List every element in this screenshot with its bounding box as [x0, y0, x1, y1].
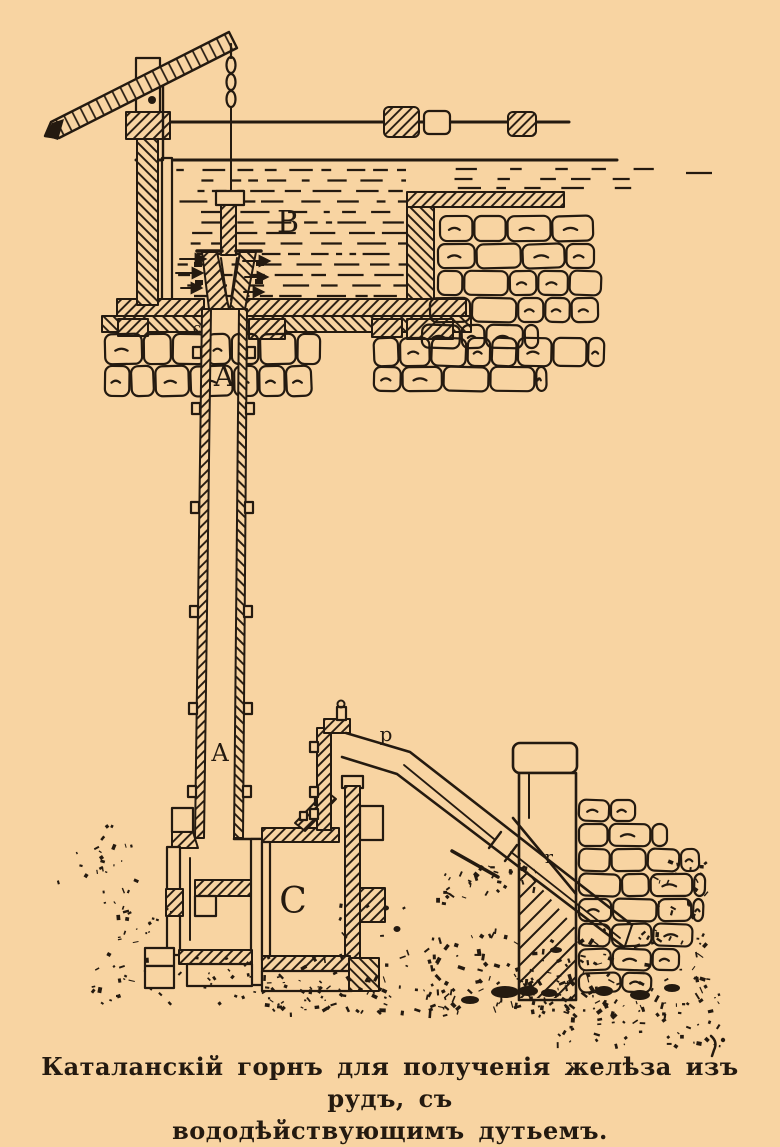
ground-speckle	[456, 955, 459, 957]
ground-speckle	[697, 1024, 699, 1026]
stone	[694, 874, 705, 896]
stone	[443, 366, 488, 391]
ground-speckle	[586, 960, 589, 965]
stone	[647, 848, 679, 871]
ground-speckle	[450, 989, 453, 995]
ground-speckle	[540, 1005, 544, 1010]
ground-speckle	[414, 1008, 421, 1013]
ground-speckle	[504, 935, 508, 940]
ground-speckle	[569, 1040, 572, 1043]
ground-speckle	[467, 989, 473, 995]
stone	[579, 873, 621, 896]
ground-speckle	[385, 963, 388, 966]
stone	[490, 367, 534, 392]
ground-speckle	[178, 971, 182, 975]
ground-speckle	[701, 933, 705, 937]
caption-line-1: Каталанскій горнъ для полученія желѣза и…	[0, 1051, 780, 1115]
ground-speckle	[655, 932, 659, 937]
hearth-label: r	[545, 848, 554, 868]
ground-speckle	[494, 928, 497, 934]
caption: Каталанскій горнъ для полученія желѣза и…	[0, 1051, 780, 1147]
ground-speckle	[587, 977, 589, 983]
ground-speckle	[612, 1021, 615, 1023]
ground-speckle	[122, 888, 125, 894]
ground-speckle	[477, 968, 483, 972]
ground-speckle	[719, 1045, 721, 1047]
ground-speckle	[717, 993, 720, 996]
ground-speckle	[324, 999, 326, 1001]
ground-speckle	[557, 1042, 559, 1048]
ground-speckle	[57, 880, 60, 884]
ground-speckle	[253, 991, 256, 993]
ground-speckle	[121, 860, 122, 862]
ground-speckle	[638, 1010, 641, 1012]
ground-speckle	[592, 995, 594, 998]
ground-speckle	[717, 1001, 720, 1004]
ground-speckle	[538, 1014, 541, 1018]
pipe-flange	[244, 606, 252, 617]
reservoir-label: B	[277, 205, 299, 240]
ground-speckle	[667, 1043, 672, 1045]
ground-blob	[550, 947, 562, 953]
stone	[472, 297, 517, 322]
ground-speckle	[76, 852, 78, 855]
ground-speckle	[118, 978, 122, 983]
chest-base-beam	[262, 956, 350, 971]
box-base-beam	[179, 950, 252, 964]
ground-speckle	[494, 963, 501, 968]
ground-speckle	[531, 1009, 535, 1014]
catalan-forge-engraving: B	[0, 0, 780, 1147]
ground-speckle	[405, 965, 408, 968]
ground-blob	[383, 906, 389, 911]
stone	[476, 243, 521, 268]
foundation-block	[372, 319, 402, 337]
ground-speckle	[677, 1032, 680, 1035]
ground-speckle	[704, 1037, 710, 1043]
ground-speckle	[94, 846, 100, 850]
ground-speckle	[475, 954, 482, 956]
ground-speckle	[614, 999, 618, 1004]
ground-speckle	[664, 978, 669, 982]
ground-speckle	[217, 1001, 221, 1005]
stone	[579, 848, 610, 871]
ground-speckle	[127, 890, 130, 894]
ground-speckle	[241, 995, 245, 999]
ground-speckle	[488, 976, 491, 981]
blast-pipe-label: p	[380, 722, 393, 746]
ground-speckle	[457, 1010, 459, 1014]
ground-speckle	[97, 987, 102, 993]
stone	[553, 338, 586, 366]
ground-speckle	[113, 864, 114, 866]
ground-speckle	[444, 873, 447, 876]
ground-speckle	[697, 953, 704, 958]
ground-speckle	[304, 1009, 306, 1010]
ground-speckle	[443, 891, 447, 894]
chain	[227, 44, 236, 193]
ground-speckle	[549, 1001, 554, 1006]
ground-speckle	[569, 1026, 572, 1029]
ground-speckle	[381, 988, 387, 993]
ground-speckle	[479, 934, 484, 939]
reservoir-right-wall	[407, 207, 434, 304]
ground-speckle	[680, 1035, 684, 1039]
ground-speckle	[426, 994, 429, 1000]
pipe-flange	[191, 502, 199, 513]
pipe-collar	[489, 832, 501, 848]
stone	[373, 338, 398, 367]
ground-speckle	[106, 952, 111, 957]
ground-speckle	[452, 996, 456, 1003]
ground-speckle	[277, 1003, 280, 1006]
reservoir-floor-beam	[117, 299, 204, 316]
ground-speckle	[532, 952, 537, 956]
stone	[579, 948, 612, 970]
pipe-flange	[190, 606, 198, 617]
ground-speckle	[427, 959, 431, 964]
ground-speckle	[263, 975, 266, 981]
stone	[652, 824, 667, 846]
ground-speckle	[673, 1044, 678, 1049]
ground-speckle	[430, 1004, 436, 1009]
ground-speckle	[300, 1006, 303, 1008]
ground-speckle	[702, 942, 708, 948]
ground-speckle	[457, 965, 465, 971]
caption-line-2: вододѣйствующимъ дутьемъ.	[0, 1115, 780, 1147]
ground-speckle	[593, 1033, 600, 1037]
ground-speckle	[428, 1011, 431, 1018]
chest-left-wall	[262, 842, 270, 960]
ground-speckle	[450, 1002, 456, 1008]
ground-speckle	[101, 867, 103, 872]
rod-weight	[508, 112, 536, 136]
ground-speckle	[571, 1017, 575, 1022]
ground-speckle	[514, 974, 517, 978]
ground-speckle	[700, 865, 704, 869]
stone	[622, 874, 649, 897]
ground-speckle	[441, 989, 446, 994]
ground-speckle	[79, 864, 83, 867]
ground-speckle	[113, 901, 116, 904]
pipe-flange	[192, 403, 200, 414]
ground-speckle	[595, 1038, 599, 1042]
ground-speckle	[384, 996, 387, 999]
ground-speckle	[708, 1020, 712, 1024]
ground-blob	[518, 986, 538, 996]
ground-speckle	[158, 992, 162, 996]
ground-speckle	[433, 955, 436, 960]
ground-speckle	[304, 999, 306, 1001]
ground-speckle	[655, 1012, 660, 1017]
ground-speckle	[580, 955, 586, 958]
foundation-block	[249, 319, 285, 339]
ground-texture	[57, 824, 721, 1049]
ground-speckle	[84, 873, 89, 878]
ground-speckle	[483, 962, 489, 968]
ground-speckle	[330, 1002, 337, 1006]
pipe-flange	[245, 502, 253, 513]
stone	[131, 366, 154, 397]
ground-speckle	[100, 1002, 104, 1005]
ground-speckle	[695, 878, 699, 883]
ground-speckle	[431, 983, 434, 986]
ground-speckle	[716, 1024, 721, 1030]
ground-speckle	[156, 919, 159, 922]
pipe-flange	[243, 786, 251, 797]
ground-speckle	[399, 955, 405, 959]
ground-speckle	[509, 870, 513, 873]
ground-speckle	[682, 1003, 685, 1005]
ground-speckle	[676, 1003, 677, 1007]
ground-speckle	[622, 1021, 625, 1024]
ground-speckle	[402, 906, 406, 909]
ground-speckle	[496, 981, 500, 985]
ground-speckle	[471, 935, 473, 938]
pipe-label-upper: A	[213, 360, 235, 393]
ground-speckle	[448, 877, 451, 881]
ground-speckle	[136, 928, 138, 930]
ground-speckle	[438, 1006, 444, 1008]
pipe-flange	[189, 703, 197, 714]
ground-speckle	[128, 980, 134, 983]
ground-speckle	[614, 1044, 618, 1050]
ground-speckle	[105, 871, 108, 873]
ground-speckle	[446, 887, 451, 891]
ground-speckle	[371, 994, 378, 1000]
ground-speckle	[699, 977, 706, 982]
stone-wall-right	[579, 799, 706, 992]
ground-speckle	[496, 889, 500, 893]
ground-speckle	[111, 844, 116, 851]
box-shelf	[195, 880, 251, 896]
rod-weight	[424, 111, 450, 134]
ground-speckle	[444, 1005, 450, 1010]
ground-speckle	[399, 985, 401, 988]
stone	[474, 216, 505, 241]
ground-speckle	[112, 965, 115, 968]
ground-speckle	[595, 1000, 601, 1004]
ground-speckle	[125, 844, 127, 848]
ground-speckle	[481, 954, 485, 961]
ground-speckle	[484, 891, 488, 896]
air-chest-label: C	[279, 881, 307, 922]
chest-right-wall	[345, 786, 360, 962]
ground-speckle	[639, 1031, 642, 1034]
ground-speckle	[670, 910, 673, 916]
ground-speckle	[110, 825, 114, 829]
support-post	[137, 139, 158, 305]
ground-speckle	[92, 986, 96, 988]
ground-speckle	[703, 861, 707, 865]
ground-speckle	[100, 859, 105, 863]
ground-speckle	[659, 880, 661, 884]
small-c-label: c	[193, 319, 201, 337]
ground-speckle	[640, 1022, 646, 1024]
ground-speckle	[562, 1030, 567, 1035]
ground-speckle	[281, 1001, 285, 1004]
ground-speckle	[445, 895, 450, 900]
ground-speckle	[686, 1002, 690, 1006]
stone	[569, 270, 601, 295]
ground-speckle	[435, 974, 442, 981]
ground-speckle	[125, 917, 129, 921]
ground-speckle	[345, 1006, 350, 1012]
pipe-flange	[188, 786, 196, 797]
ground-speckle	[596, 1008, 603, 1015]
ground-speckle	[123, 978, 126, 980]
ground-speckle	[695, 993, 700, 1000]
reservoir-left-wall	[162, 158, 172, 302]
ground-speckle	[608, 979, 615, 984]
ground-speckle	[496, 1002, 499, 1006]
plug-valve	[176, 191, 269, 309]
ground-speckle	[641, 1007, 645, 1012]
stone	[297, 334, 320, 364]
rod-weight	[384, 107, 419, 137]
ground-speckle	[122, 906, 125, 910]
ground-speckle	[145, 932, 147, 934]
ground-speckle	[383, 1003, 387, 1006]
pipe-flange	[246, 403, 254, 414]
ground-speckle	[269, 999, 273, 1002]
ground-speckle	[493, 1006, 496, 1013]
ground-speckle	[462, 896, 467, 899]
ground-speckle	[636, 1001, 638, 1005]
trompe-pipe: A A c	[188, 309, 255, 838]
stone	[438, 271, 463, 295]
stone	[579, 824, 608, 846]
ground-speckle	[380, 935, 384, 937]
ground-speckle	[696, 938, 699, 940]
ground-speckle	[406, 950, 409, 956]
ground-speckle	[656, 938, 662, 943]
ground-speckle	[538, 1005, 540, 1007]
ground-speckle	[277, 1005, 282, 1008]
ground-speckle	[668, 936, 672, 941]
stone	[525, 325, 539, 348]
ground-speckle	[432, 937, 435, 940]
ground-speckle	[437, 989, 440, 995]
ground-speckle	[597, 1023, 601, 1025]
ground-speckle	[510, 1001, 513, 1008]
ground-speckle	[478, 988, 484, 991]
foundation-stones-left	[105, 334, 321, 397]
ground-speckle	[415, 988, 418, 991]
ground-speckle	[435, 957, 441, 964]
pipe-flange	[244, 703, 252, 714]
ground-speckle	[99, 850, 102, 853]
ground-speckle	[339, 903, 343, 908]
ground-speckle	[497, 880, 502, 884]
ground-speckle	[314, 1005, 319, 1009]
ground-speckle	[693, 1042, 695, 1044]
ground-speckle	[454, 943, 459, 948]
ground-speckle	[706, 978, 710, 980]
ground-speckle	[116, 995, 119, 997]
ground-speckle	[557, 1033, 561, 1037]
ground-speckle	[699, 987, 703, 994]
pipe-label-lower: A	[210, 739, 229, 767]
ground-speckle	[623, 1043, 625, 1045]
ground-speckle	[123, 931, 126, 935]
ground-speckle	[355, 1009, 360, 1013]
ground-speckle	[616, 983, 620, 986]
ground-speckle	[443, 944, 449, 951]
ground-speckle	[148, 931, 150, 933]
ground-speckle	[400, 1011, 404, 1016]
ground-speckle	[679, 969, 682, 971]
ground-blob	[541, 989, 557, 997]
ground-speckle	[646, 935, 650, 940]
ground-speckle	[442, 902, 447, 906]
water-reservoir: B	[102, 158, 617, 339]
pipe-wall	[195, 309, 211, 838]
ground-speckle	[678, 1012, 682, 1015]
ground-speckle	[686, 1026, 691, 1030]
ground-speckle	[104, 902, 107, 904]
ground-speckle	[714, 997, 716, 999]
ground-speckle	[423, 989, 425, 991]
ground-speckle	[503, 885, 507, 889]
ground-speckle	[459, 871, 463, 877]
ground-speckle	[506, 963, 510, 967]
ground-speckle	[152, 917, 155, 920]
ground-speckle	[670, 906, 676, 911]
plug-handle	[216, 191, 244, 205]
ground-speckle	[654, 995, 660, 1003]
ground-speckle	[668, 859, 674, 864]
ground-speckle	[388, 995, 391, 998]
stone	[492, 338, 517, 367]
ground-speckle	[603, 954, 606, 956]
pipe-flange	[193, 347, 201, 358]
ground-speckle	[379, 1008, 386, 1012]
ground-speckle	[124, 974, 128, 977]
ground-speckle	[130, 844, 133, 847]
ground-speckle	[166, 908, 169, 911]
ground-speckle	[118, 938, 122, 940]
ground-speckle	[424, 948, 430, 953]
ground-speckle	[532, 1001, 536, 1006]
ground-speckle	[267, 982, 272, 984]
ground-speckle	[96, 870, 98, 874]
ground-speckle	[99, 855, 104, 860]
ground-speckle	[444, 981, 449, 986]
stone	[144, 334, 171, 364]
ground-speckle	[593, 1007, 596, 1010]
ground-speckle	[203, 986, 206, 988]
ground-speckle	[234, 994, 238, 997]
ground-speckle	[360, 1010, 364, 1014]
ground-speckle	[338, 917, 342, 921]
ground-speckle	[597, 1018, 602, 1021]
ground-speckle	[692, 966, 696, 970]
ground-speckle	[105, 824, 110, 829]
reservoir-top-beam	[407, 192, 564, 207]
pivot-bolt	[148, 96, 156, 104]
ground-speckle	[552, 1009, 555, 1012]
ground-blob	[461, 996, 479, 1004]
ground-speckle	[695, 952, 698, 958]
stone	[613, 898, 657, 921]
ground-speckle	[436, 898, 440, 903]
ground-blob	[491, 986, 519, 998]
stone	[464, 271, 508, 296]
ground-speckle	[195, 957, 198, 960]
ground-speckle	[320, 996, 323, 999]
ground-blob	[595, 986, 613, 996]
